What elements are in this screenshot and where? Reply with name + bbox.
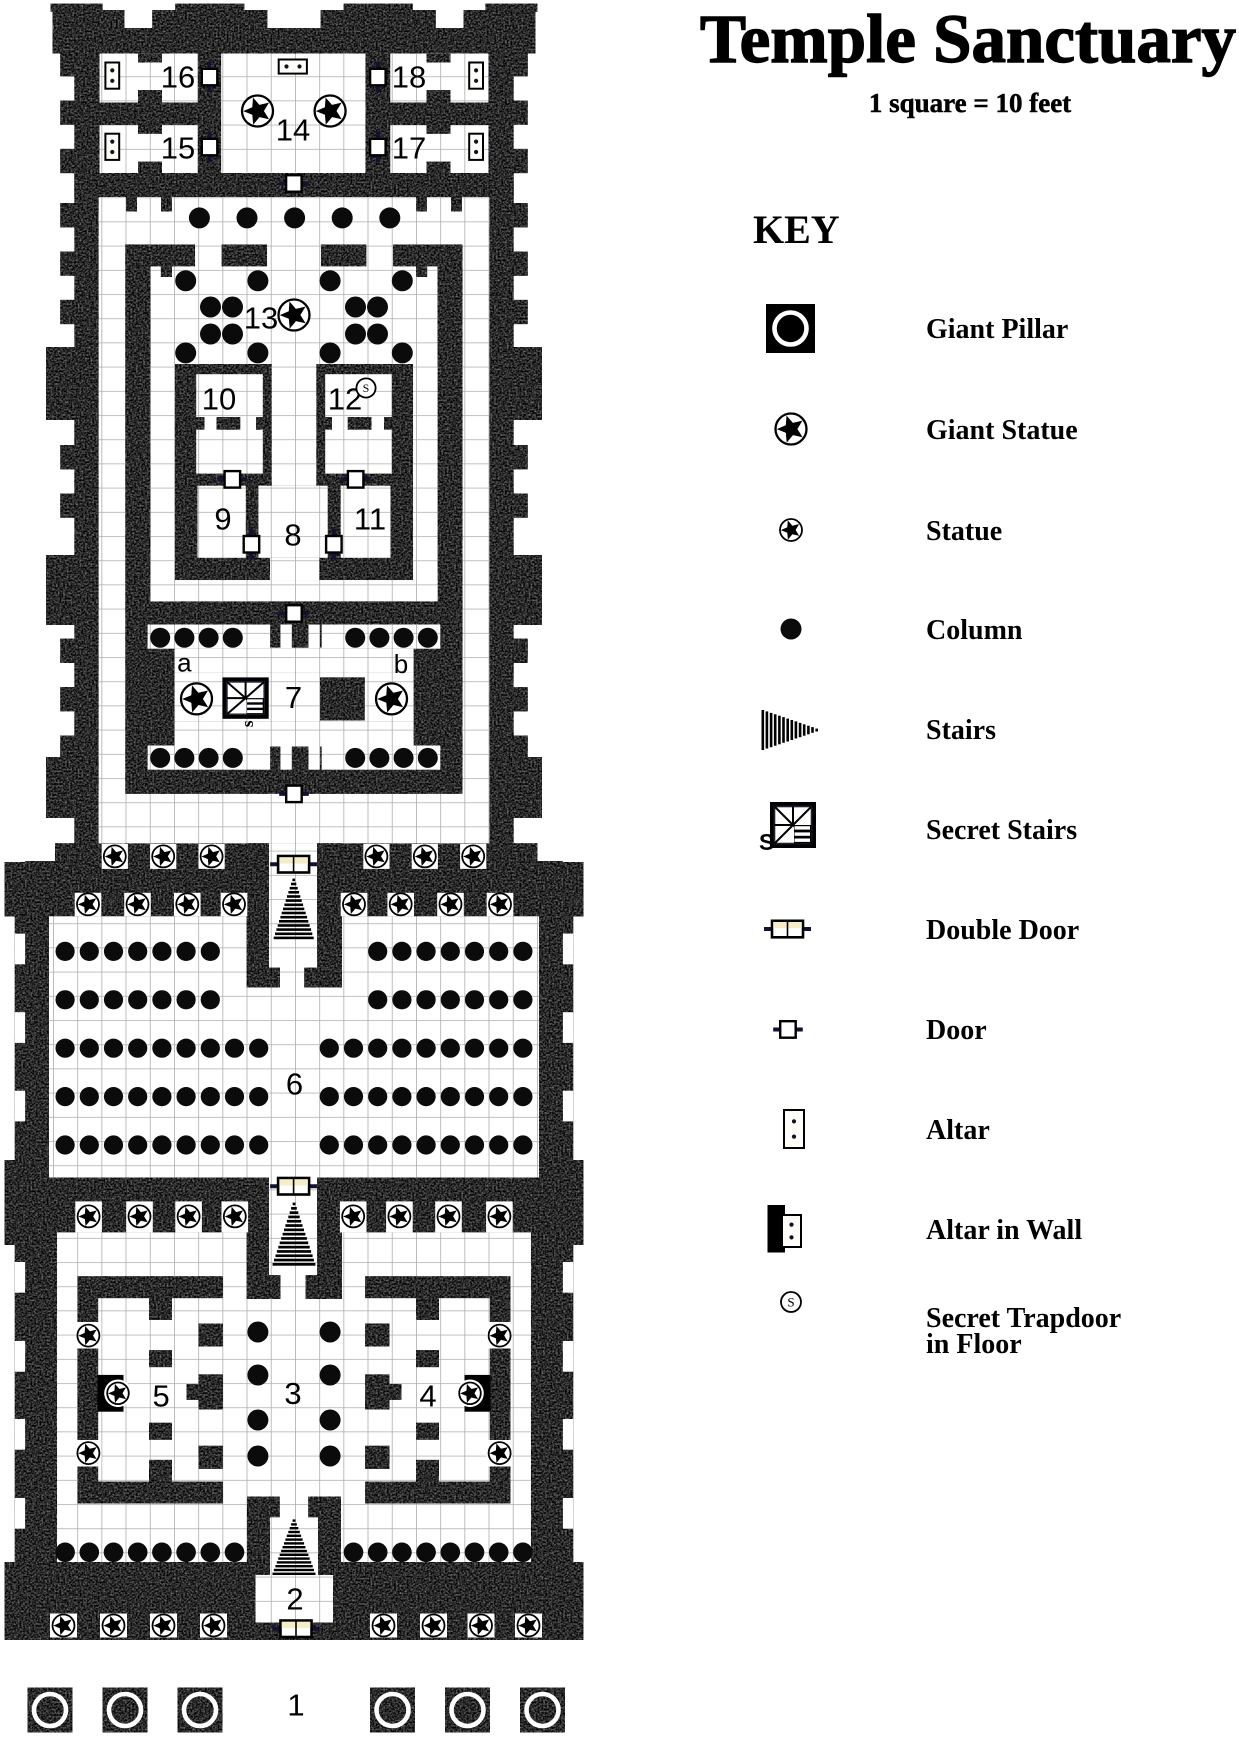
svg-text:5: 5 [152, 1379, 169, 1414]
svg-text:Stairs: Stairs [926, 715, 996, 746]
svg-text:Secret Stairs: Secret Stairs [926, 815, 1077, 846]
svg-text:in Floor: in Floor [926, 1329, 1022, 1360]
svg-text:17: 17 [392, 131, 426, 166]
svg-text:Altar: Altar [926, 1115, 990, 1146]
svg-text:Altar in Wall: Altar in Wall [926, 1215, 1082, 1246]
svg-text:Giant Statue: Giant Statue [926, 415, 1078, 446]
svg-text:9: 9 [214, 502, 231, 537]
svg-text:13: 13 [244, 301, 278, 336]
svg-text:S: S [759, 829, 774, 855]
svg-text:16: 16 [161, 60, 195, 95]
svg-text:Temple Sanctuary: Temple Sanctuary [700, 1, 1236, 77]
svg-text:4: 4 [419, 1379, 436, 1414]
svg-text:1 square = 10 feet: 1 square = 10 feet [869, 88, 1071, 118]
svg-text:b: b [394, 649, 408, 679]
svg-text:Statue: Statue [926, 516, 1002, 547]
svg-text:a: a [177, 648, 192, 678]
svg-text:Giant Pillar: Giant Pillar [926, 314, 1068, 345]
svg-text:Double Door: Double Door [926, 915, 1079, 946]
svg-text:3: 3 [284, 1376, 301, 1411]
svg-text:18: 18 [392, 60, 426, 95]
svg-text:15: 15 [161, 131, 195, 166]
svg-text:Door: Door [926, 1015, 987, 1046]
svg-text:10: 10 [202, 382, 236, 417]
svg-text:11: 11 [354, 502, 386, 537]
svg-text:8: 8 [284, 518, 301, 553]
svg-text:7: 7 [285, 680, 302, 715]
svg-text:6: 6 [286, 1067, 303, 1102]
svg-text:S: S [363, 381, 370, 395]
svg-text:2: 2 [286, 1582, 303, 1617]
svg-text:KEY: KEY [753, 207, 840, 252]
svg-text:Column: Column [926, 615, 1023, 646]
svg-text:1: 1 [287, 1688, 304, 1723]
svg-text:14: 14 [276, 113, 310, 148]
svg-text:S: S [787, 1295, 794, 1310]
svg-text:s: s [238, 720, 257, 727]
